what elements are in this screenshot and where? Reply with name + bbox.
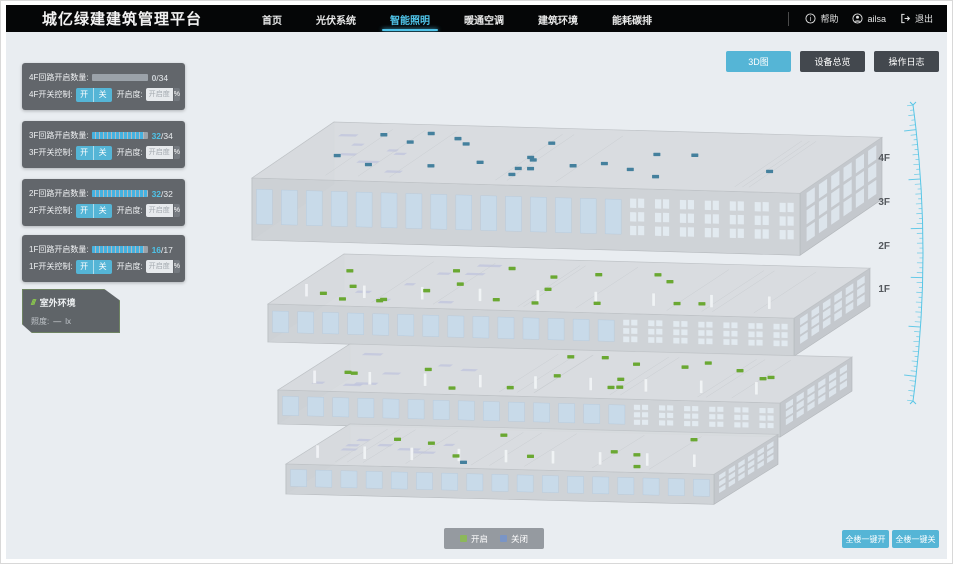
floor-panel-1f: 1F回路开启数量: 16/17 1F开关控制: 开关 开启度: % <box>22 235 185 282</box>
floor-panel-4f: 4F回路开启数量: 0/34 4F开关控制: 开关 开启度: % <box>22 63 185 110</box>
switch-control-label: 4F开关控制: <box>29 89 73 100</box>
outdoor-env-icon: /// <box>31 298 35 307</box>
floor-label-1f[interactable]: 1F <box>878 284 890 295</box>
user-avatar-icon <box>852 13 863 24</box>
illuminance-value: — <box>53 317 61 326</box>
dim-label: 开启度: <box>117 205 143 216</box>
username: ailsa <box>867 14 886 24</box>
nav-item-hvac[interactable]: 暖通空调 <box>462 5 506 32</box>
switch-control-label: 3F开关控制: <box>29 147 73 158</box>
circuit-progress-bar <box>92 74 148 81</box>
switch-off-button[interactable]: 关 <box>94 88 112 102</box>
nav-item-energy[interactable]: 能耗碳排 <box>610 5 654 32</box>
dim-input[interactable] <box>146 260 173 273</box>
switch-on-button[interactable]: 开 <box>76 146 94 160</box>
floor-label-3f[interactable]: 3F <box>878 197 890 208</box>
help-button[interactable]: i 帮助 <box>805 12 838 25</box>
marker-legend: 开启 关闭 <box>444 528 544 549</box>
top-navbar: 城亿绿建建筑管理平台 首页 光伏系统 智能照明 暖通空调 建筑环境 能耗碳排 i… <box>6 5 947 32</box>
percent-button[interactable]: % <box>174 260 180 273</box>
switch-on-button[interactable]: 开 <box>76 88 94 102</box>
circuit-progress-bar <box>92 246 148 253</box>
circuit-progress-bar <box>92 132 148 139</box>
platform-title: 城亿绿建建筑管理平台 <box>42 8 202 29</box>
dim-label: 开启度: <box>117 261 143 272</box>
all-on-button[interactable]: 全楼一键开 <box>842 530 889 548</box>
switch-group: 开关 <box>76 88 112 102</box>
dim-input[interactable] <box>146 204 173 217</box>
main-view: 4F回路开启数量: 0/34 4F开关控制: 开关 开启度: % 3F回路开启数… <box>6 32 947 559</box>
logout-icon <box>900 13 911 24</box>
legend-on-label: 开启 <box>471 533 488 545</box>
view-3d-button[interactable]: 3D图 <box>726 51 791 72</box>
percent-button[interactable]: % <box>174 88 180 101</box>
device-overview-button[interactable]: 设备总览 <box>800 51 865 72</box>
nav-item-pv[interactable]: 光伏系统 <box>314 5 358 32</box>
floor-panel-3f: 3F回路开启数量: 32/34 3F开关控制: 开关 开启度: % <box>22 121 185 168</box>
floor-zoom-scale[interactable] <box>897 97 939 409</box>
circuit-count-value: 32/32 <box>152 189 173 199</box>
legend-off-label: 关闭 <box>511 533 528 545</box>
switch-group: 开关 <box>76 204 112 218</box>
switch-off-button[interactable]: 关 <box>94 146 112 160</box>
nav-item-lighting[interactable]: 智能照明 <box>388 5 432 32</box>
switch-on-button[interactable]: 开 <box>76 204 94 218</box>
circuit-count-value: 16/17 <box>152 245 173 255</box>
dim-input[interactable] <box>146 146 173 159</box>
dim-input[interactable] <box>146 88 173 101</box>
switch-group: 开关 <box>76 146 112 160</box>
circuit-count-label: 3F回路开启数量: <box>29 130 89 141</box>
dim-label: 开启度: <box>117 147 143 158</box>
circuit-count-value: 32/34 <box>152 131 173 141</box>
percent-button[interactable]: % <box>174 146 180 159</box>
circuit-count-label: 1F回路开启数量: <box>29 244 89 255</box>
main-nav: 首页 光伏系统 智能照明 暖通空调 建筑环境 能耗碳排 <box>260 5 654 32</box>
circuit-count-value: 0/34 <box>152 73 169 83</box>
switch-off-button[interactable]: 关 <box>94 204 112 218</box>
illuminance-unit: lx <box>65 317 71 326</box>
mass-control: 全楼一键开 全楼一键关 <box>842 530 939 548</box>
outdoor-env-panel: /// 室外环境 照度:—lx <box>22 289 120 333</box>
all-off-button[interactable]: 全楼一键关 <box>892 530 939 548</box>
nav-divider <box>788 12 789 26</box>
svg-text:i: i <box>810 16 812 23</box>
switch-control-label: 1F开关控制: <box>29 261 73 272</box>
switch-group: 开关 <box>76 260 112 274</box>
illuminance-label: 照度: <box>31 317 49 326</box>
switch-off-button[interactable]: 关 <box>94 260 112 274</box>
circuit-count-label: 2F回路开启数量: <box>29 188 89 199</box>
floor-label-2f[interactable]: 2F <box>878 241 890 252</box>
nav-item-home[interactable]: 首页 <box>260 5 284 32</box>
operation-log-button[interactable]: 操作日志 <box>874 51 939 72</box>
floor-panel-2f: 2F回路开启数量: 32/32 2F开关控制: 开关 开启度: % <box>22 179 185 226</box>
app-window: 城亿绿建建筑管理平台 首页 光伏系统 智能照明 暖通空调 建筑环境 能耗碳排 i… <box>0 0 953 564</box>
percent-button[interactable]: % <box>174 204 180 217</box>
legend-on-swatch <box>460 535 467 542</box>
nav-item-env[interactable]: 建筑环境 <box>536 5 580 32</box>
user-menu[interactable]: ailsa <box>852 13 886 24</box>
building-3d-view[interactable] <box>6 32 947 559</box>
floor-label-4f[interactable]: 4F <box>878 153 890 164</box>
view-switcher: 3D图 设备总览 操作日志 <box>726 51 939 72</box>
navbar-right: i 帮助 ailsa 退出 <box>788 12 933 26</box>
legend-off-swatch <box>500 535 507 542</box>
dim-label: 开启度: <box>117 89 143 100</box>
info-icon: i <box>805 13 816 24</box>
circuit-count-label: 4F回路开启数量: <box>29 72 89 83</box>
logout-button[interactable]: 退出 <box>900 12 933 25</box>
switch-control-label: 2F开关控制: <box>29 205 73 216</box>
circuit-progress-bar <box>92 190 148 197</box>
outdoor-env-title: 室外环境 <box>40 296 76 309</box>
illuminance-row: 照度:—lx <box>31 316 111 327</box>
switch-on-button[interactable]: 开 <box>76 260 94 274</box>
